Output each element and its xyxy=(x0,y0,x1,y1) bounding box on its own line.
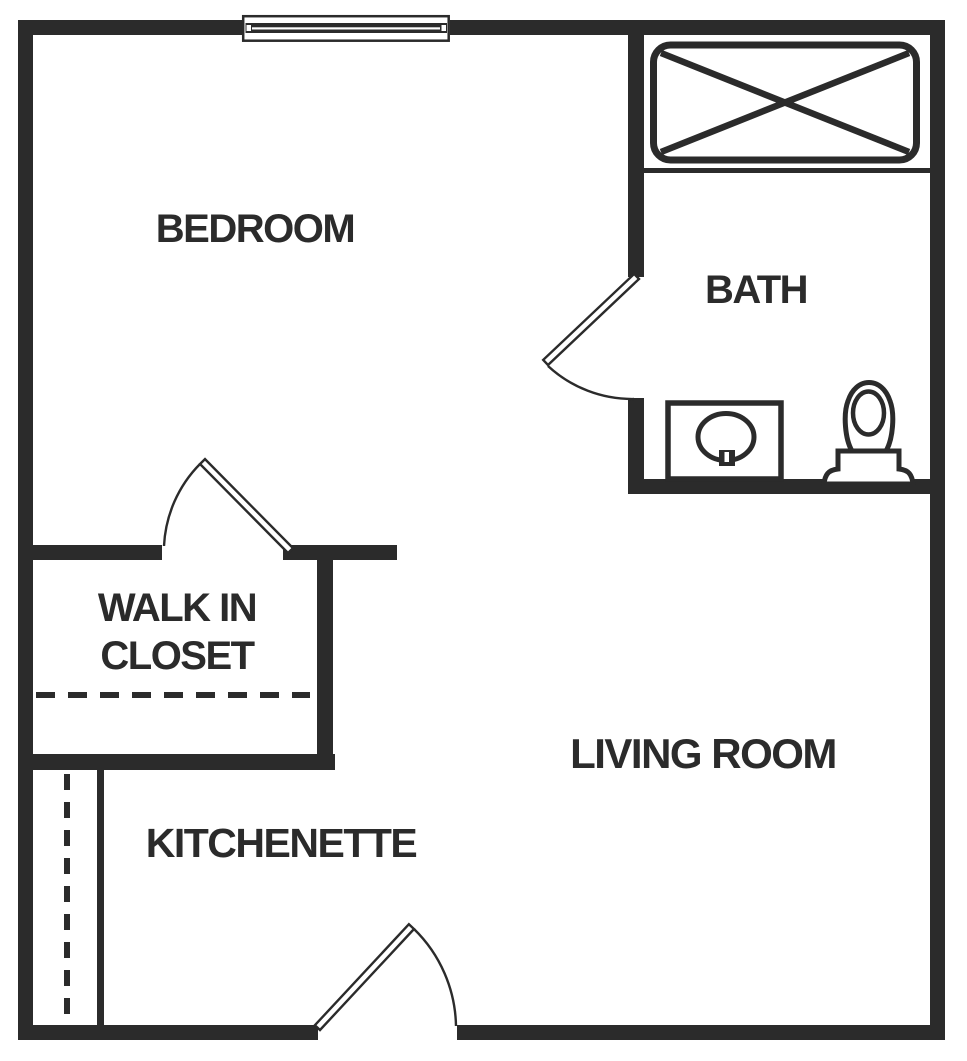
wall-right xyxy=(930,20,945,1040)
toilet-tank xyxy=(824,451,913,484)
room-label-bath: BATH xyxy=(705,268,807,312)
floor-plan: BEDROOM BATH WALK IN CLOSET LIVING ROOM … xyxy=(0,0,967,1061)
closet-wall-top-right xyxy=(283,545,397,560)
room-label-kitchenette: KITCHENETTE xyxy=(146,820,417,866)
entry-door-leaf xyxy=(315,924,414,1030)
wall-top-right-segment xyxy=(450,20,945,35)
wall-top-left-segment xyxy=(18,20,242,35)
window-glass-line xyxy=(252,27,440,29)
room-label-bedroom: BEDROOM xyxy=(156,207,354,251)
bath-door-arc xyxy=(548,366,634,399)
sink-vanity-icon xyxy=(668,403,781,479)
toilet-icon xyxy=(824,383,913,485)
closet-wall-right xyxy=(317,545,333,770)
room-label-walk-in-closet-line2: CLOSET xyxy=(100,634,254,678)
room-label-walk-in-closet-line1: WALK IN xyxy=(98,586,256,630)
wall-bottom-left-segment xyxy=(18,1025,318,1040)
closet-door xyxy=(164,459,293,553)
kitchenette-counter-edge xyxy=(97,770,104,1027)
room-label-living-room: LIVING ROOM xyxy=(570,730,836,777)
sink-faucet-slot xyxy=(725,452,730,462)
closet-wall-top-left xyxy=(33,545,162,560)
closet-door-leaf xyxy=(200,459,293,553)
wall-bottom-right-segment xyxy=(457,1025,945,1040)
floor-plan-canvas: BEDROOM BATH WALK IN CLOSET LIVING ROOM … xyxy=(0,0,967,1061)
window-jamb-right xyxy=(442,25,447,31)
bathtub-ledge-line xyxy=(643,168,930,173)
wall-left xyxy=(18,20,33,1040)
bath-door xyxy=(543,274,639,399)
closet-wall-bottom xyxy=(18,754,335,770)
bathtub-icon xyxy=(643,45,930,173)
closet-door-arc xyxy=(164,464,200,546)
window-icon xyxy=(243,16,449,41)
bath-door-leaf xyxy=(543,274,639,365)
window-jamb-left xyxy=(247,25,252,31)
entry-door xyxy=(315,924,456,1030)
bath-wall-left-upper xyxy=(628,35,644,277)
entry-door-arc xyxy=(414,929,456,1026)
